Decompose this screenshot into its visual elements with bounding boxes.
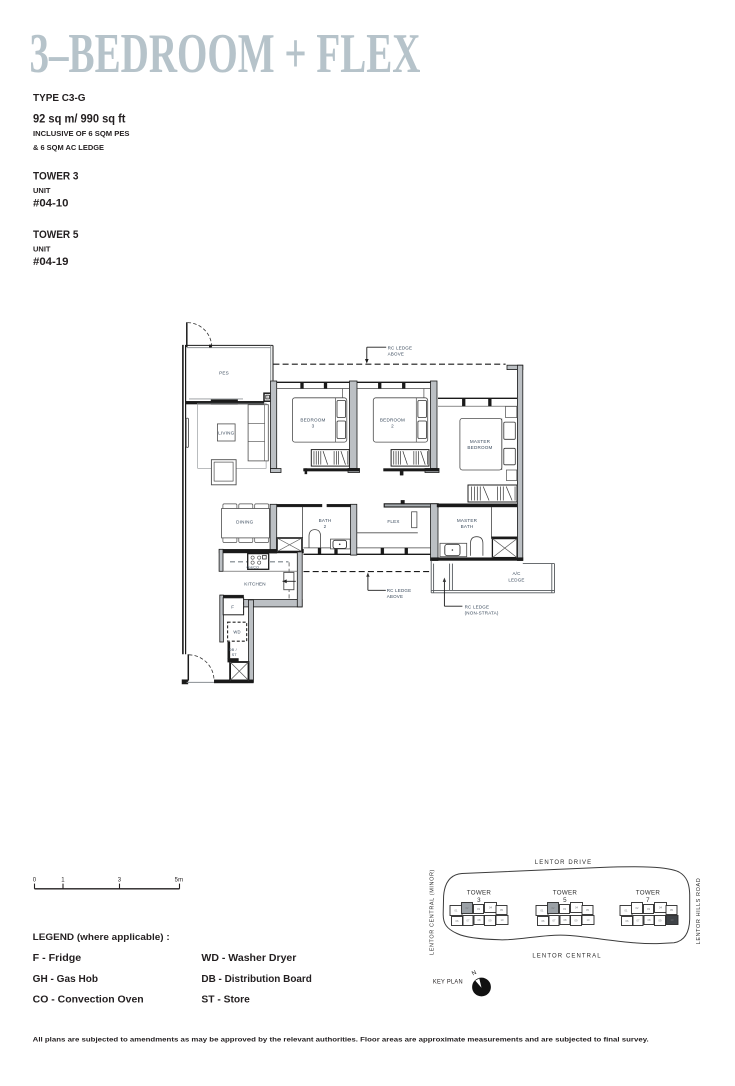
svg-text:BATH: BATH bbox=[461, 524, 474, 529]
svg-text:All plans are subjected to ame: All plans are subjected to amendments as… bbox=[33, 1037, 649, 1044]
svg-text:FLEX: FLEX bbox=[387, 519, 399, 524]
svg-text:92 sq m/ 990 sq ft: 92 sq m/ 990 sq ft bbox=[33, 112, 126, 126]
svg-text:BATH: BATH bbox=[319, 518, 332, 523]
svg-text:#04-10: #04-10 bbox=[33, 198, 69, 210]
svg-text:TYPE C3-G: TYPE C3-G bbox=[33, 92, 86, 104]
svg-text:KEY PLAN: KEY PLAN bbox=[433, 979, 463, 986]
svg-text:1: 1 bbox=[61, 878, 65, 884]
svg-text:LENTOR CENTRAL: LENTOR CENTRAL bbox=[532, 954, 601, 960]
svg-text:BEDROOM: BEDROOM bbox=[380, 418, 405, 423]
svg-text:UNIT: UNIT bbox=[33, 186, 51, 195]
svg-text:RC LEDGE: RC LEDGE bbox=[387, 588, 412, 593]
svg-text:LIVING: LIVING bbox=[218, 430, 234, 435]
svg-text:3: 3 bbox=[477, 897, 481, 904]
svg-text:ABOVE: ABOVE bbox=[388, 352, 405, 357]
svg-text:GH - Gas Hob: GH - Gas Hob bbox=[33, 974, 98, 985]
svg-text:TOWER: TOWER bbox=[553, 890, 578, 897]
svg-text:INCLUSIVE OF 6 SQM PES: INCLUSIVE OF 6 SQM PES bbox=[33, 129, 130, 138]
svg-text:DB - Distribution Board: DB - Distribution Board bbox=[201, 974, 312, 985]
svg-text:#04-19: #04-19 bbox=[33, 256, 69, 268]
svg-text:LEGEND (where applicable) :: LEGEND (where applicable) : bbox=[33, 932, 170, 942]
svg-text:CO - Convection Oven: CO - Convection Oven bbox=[33, 995, 144, 1006]
svg-text:F - Fridge: F - Fridge bbox=[33, 953, 82, 964]
svg-text:ABOVE: ABOVE bbox=[387, 594, 404, 599]
svg-text:RC LEDGE: RC LEDGE bbox=[465, 604, 490, 609]
svg-text:7: 7 bbox=[646, 897, 650, 904]
svg-text:ST - Store: ST - Store bbox=[201, 995, 250, 1006]
svg-text:LEDGE: LEDGE bbox=[508, 577, 524, 582]
svg-text:5m: 5m bbox=[175, 878, 184, 884]
svg-text:GH/CO: GH/CO bbox=[247, 565, 260, 569]
svg-text:WD: WD bbox=[233, 630, 240, 635]
svg-text:G: G bbox=[267, 395, 269, 399]
svg-text:MASTER: MASTER bbox=[457, 518, 478, 523]
svg-text:LENTOR DRIVE: LENTOR DRIVE bbox=[535, 860, 592, 866]
svg-text:TOWER 5: TOWER 5 bbox=[33, 229, 79, 241]
svg-text:KITCHEN: KITCHEN bbox=[244, 582, 266, 587]
svg-text:TOWER 3: TOWER 3 bbox=[33, 171, 79, 183]
svg-text:ST: ST bbox=[232, 653, 238, 657]
svg-text:TOWER: TOWER bbox=[636, 890, 661, 897]
svg-text:DINING: DINING bbox=[236, 519, 254, 524]
svg-text:3: 3 bbox=[312, 424, 315, 429]
svg-text:MASTER: MASTER bbox=[470, 439, 491, 444]
svg-text:F: F bbox=[231, 605, 234, 610]
svg-text:BEDROOM: BEDROOM bbox=[467, 445, 492, 450]
svg-text:TOWER: TOWER bbox=[467, 890, 492, 897]
svg-text:RC LEDGE: RC LEDGE bbox=[388, 346, 413, 351]
svg-text:LENTOR HILLS ROAD: LENTOR HILLS ROAD bbox=[696, 878, 702, 945]
svg-text:UNIT: UNIT bbox=[33, 245, 51, 254]
svg-text:5: 5 bbox=[563, 897, 567, 904]
svg-text:PES: PES bbox=[219, 371, 229, 376]
svg-text:(NON-STRATA): (NON-STRATA) bbox=[465, 611, 499, 616]
svg-text:A/C: A/C bbox=[512, 571, 521, 576]
svg-text:LENTOR CENTRAL (MINOR): LENTOR CENTRAL (MINOR) bbox=[430, 869, 436, 955]
svg-text:3: 3 bbox=[118, 878, 122, 884]
svg-text:2: 2 bbox=[391, 424, 394, 429]
svg-text:BEDROOM: BEDROOM bbox=[300, 418, 325, 423]
svg-text:DB /: DB / bbox=[229, 648, 238, 652]
svg-text:3–BEDROOM + FLEX: 3–BEDROOM + FLEX bbox=[30, 23, 421, 85]
svg-text:WD - Washer Dryer: WD - Washer Dryer bbox=[201, 953, 296, 964]
svg-text:& 6 SQM AC LEDGE: & 6 SQM AC LEDGE bbox=[33, 143, 104, 152]
svg-text:0: 0 bbox=[33, 878, 37, 884]
svg-text:2: 2 bbox=[324, 524, 327, 529]
